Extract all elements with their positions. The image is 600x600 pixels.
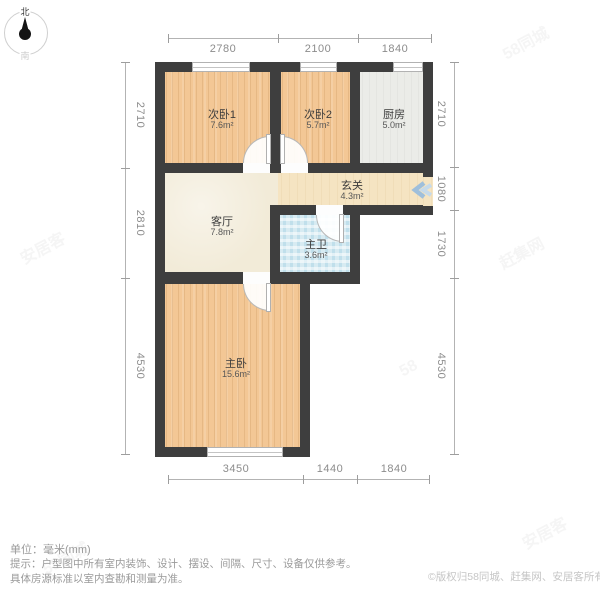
bedroom2-area: 5.7m² <box>306 120 329 130</box>
watermark: 安居客 <box>15 225 69 269</box>
dim-right-2: 1080 <box>435 176 447 202</box>
dim-line-top <box>168 38 432 39</box>
dim-bottom-3: 1840 <box>381 463 407 475</box>
wall-bedrooms-bottom-c <box>308 163 433 173</box>
dim-tick <box>450 167 459 168</box>
door-opening-bedroom1 <box>243 163 270 173</box>
dim-tick <box>450 210 459 211</box>
wall-bath-left <box>270 215 280 272</box>
dim-tick <box>168 34 169 43</box>
dim-tick <box>121 62 130 63</box>
watermark: 58同城 <box>497 20 552 65</box>
dim-left-2: 2810 <box>134 210 146 236</box>
dim-line-left <box>125 62 126 455</box>
watermark: 赶集网 <box>494 230 548 274</box>
dim-top-2: 2100 <box>305 43 331 55</box>
dim-right-1: 2710 <box>435 101 447 127</box>
dim-tick <box>303 475 304 484</box>
dim-tick <box>357 475 358 484</box>
dim-left-3: 4530 <box>134 353 146 379</box>
door-leaf-bath <box>339 214 344 243</box>
tip-note-2: 具体房源标准以室内查勘和测量为准。 <box>10 571 189 586</box>
dim-line-bottom <box>168 479 430 480</box>
bath-area: 3.6m² <box>304 250 327 260</box>
dim-left-1: 2710 <box>134 102 146 128</box>
tip-note-1: 提示：户型图中所有室内装饰、设计、摆设、间隔、尺寸、设备仅供参考。 <box>10 556 357 571</box>
dim-tick <box>431 34 432 43</box>
copyright-note: ©版权归58同城、赶集网、安居客所有 <box>428 569 594 584</box>
wall-left <box>155 62 165 457</box>
dim-bottom-1: 3450 <box>223 463 249 475</box>
dim-tick <box>121 454 130 455</box>
watermark: 安居客 <box>517 510 571 554</box>
wall-living-master-b <box>270 272 360 284</box>
door-leaf-master <box>266 283 271 312</box>
dim-tick <box>358 34 359 43</box>
wall-bedrooms-bottom-a <box>155 163 243 173</box>
dim-tick <box>450 278 459 279</box>
wall-master-right <box>300 272 310 457</box>
dim-tick <box>121 278 130 279</box>
kitchen-area: 5.0m² <box>382 120 405 130</box>
living-area: 7.8m² <box>210 227 233 237</box>
compass-needle-ball <box>19 28 31 40</box>
dim-top-1: 2780 <box>210 43 236 55</box>
dim-tick <box>450 454 459 455</box>
wall-bedroom2-kitchen <box>350 72 360 163</box>
dim-tick <box>168 475 169 484</box>
wall-bedrooms-bottom-b <box>270 163 281 173</box>
dim-right-3: 1730 <box>435 231 447 257</box>
entrance-arrow-icon <box>409 180 433 200</box>
dim-tick <box>278 34 279 43</box>
window-master <box>207 447 283 457</box>
dim-right-4: 4530 <box>435 353 447 379</box>
dim-tick <box>450 62 459 63</box>
wall-right-upper <box>423 72 433 177</box>
floorplan-canvas: 58同城 安居客 赶集网 58 58同城 安居客 北 南 <box>0 0 600 600</box>
dim-tick <box>429 475 430 484</box>
wall-master-bottom-b <box>283 447 310 457</box>
master-area: 15.6m² <box>222 369 250 379</box>
unit-note: 单位：毫米(mm) <box>10 541 91 557</box>
dim-bottom-2: 1440 <box>317 463 343 475</box>
compass: 北 南 <box>2 2 58 64</box>
door-opening-bedroom2 <box>281 163 308 173</box>
dim-top-3: 1840 <box>382 43 408 55</box>
window-kitchen <box>393 62 423 72</box>
wall-master-bottom-a <box>155 447 207 457</box>
compass-south-label: 南 <box>19 49 30 62</box>
bedroom1-area: 7.6m² <box>210 120 233 130</box>
door-leaf-bedroom2 <box>280 134 285 164</box>
window-bedroom1 <box>192 62 250 72</box>
wall-bath-top-a <box>270 205 316 215</box>
dim-tick <box>121 168 130 169</box>
dim-line-right <box>454 62 455 455</box>
watermark: 58 <box>397 357 421 381</box>
door-leaf-bedroom1 <box>266 134 271 164</box>
wall-living-master-a <box>155 272 243 284</box>
window-bedroom2 <box>300 62 337 72</box>
entry-area: 4.3m² <box>340 191 363 201</box>
